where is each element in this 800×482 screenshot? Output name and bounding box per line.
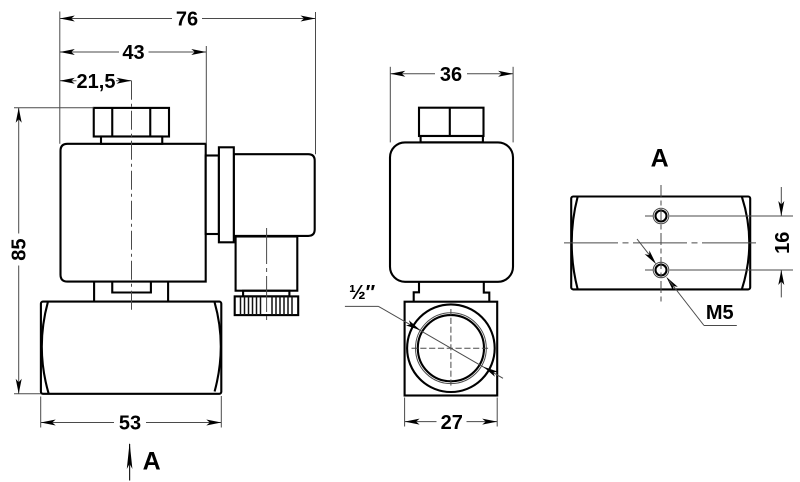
svg-text:½″: ½″: [349, 282, 376, 304]
svg-text:43: 43: [122, 42, 144, 64]
svg-text:85: 85: [9, 238, 31, 260]
svg-text:27: 27: [441, 412, 463, 434]
svg-text:53: 53: [119, 413, 141, 435]
svg-text:76: 76: [176, 9, 198, 31]
svg-text:36: 36: [440, 64, 462, 86]
svg-text:A: A: [651, 144, 669, 172]
svg-text:A: A: [143, 447, 161, 475]
svg-text:21,5: 21,5: [77, 71, 116, 93]
svg-text:M5: M5: [706, 302, 734, 324]
svg-text:16: 16: [772, 232, 794, 254]
